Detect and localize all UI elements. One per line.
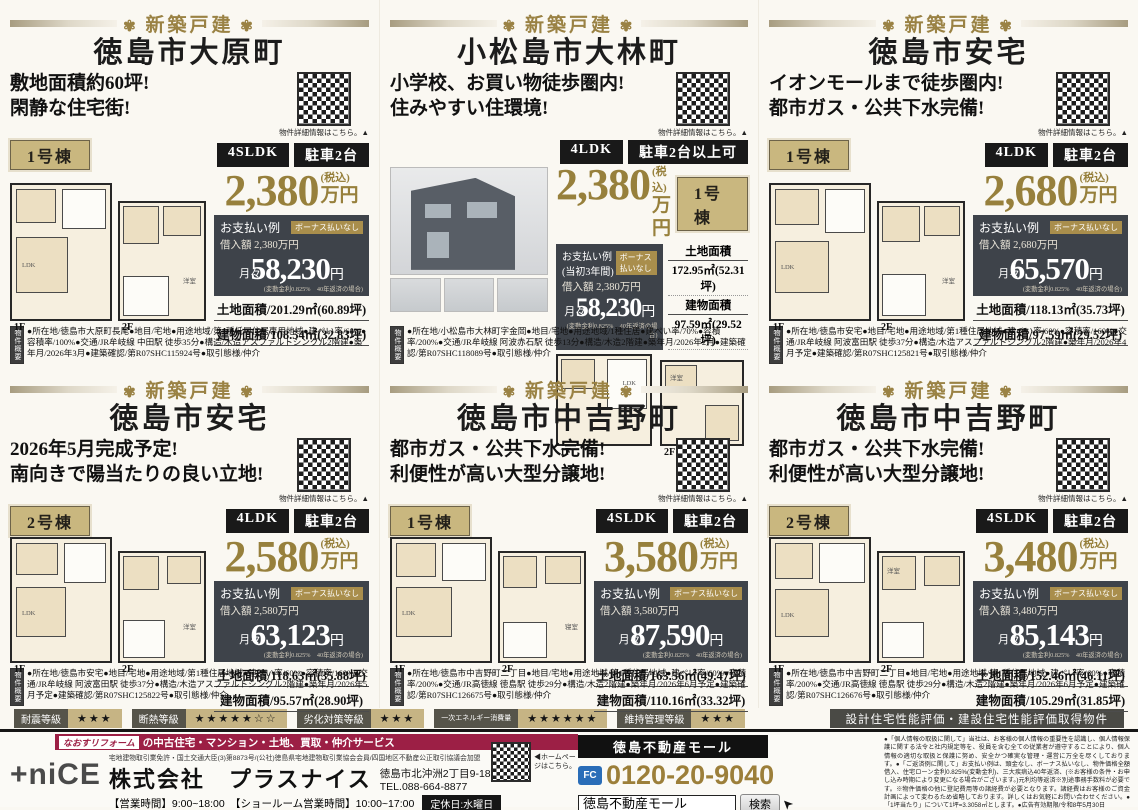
catch-copy: 小学校、お買い物徒歩圏内!住みやすい住環境! (390, 72, 624, 121)
ornament-rule (1021, 20, 1128, 27)
land-area: 172.95㎡(52.31坪) (668, 261, 748, 296)
company-address: 徳島市北沖洲2丁目9-18 TEL.088-664-8877 (380, 768, 491, 794)
qr-label: 物件詳細情報はこちら。▲ (1038, 127, 1128, 138)
qr-code[interactable] (297, 438, 351, 492)
property-overview: 物件概要 ●所在地/徳島市中吉野町二丁目●地目/宅地●用途地域/第1種住居地域●… (769, 665, 1128, 706)
exterior-photo (390, 167, 548, 275)
payment-example: お支払い例ボーナス払いなし 借入額 3,480万円 月々85,143円 (変動金… (973, 581, 1128, 662)
category-label: 新築戸建 (123, 376, 256, 403)
freecall-icon: FC (578, 766, 602, 785)
floor-plan-2f: 洋室 2F (118, 201, 206, 321)
ornament-rule (262, 20, 369, 27)
category-label: 新築戸建 (503, 10, 636, 37)
price: 2,380 (税込)万円 (556, 163, 671, 241)
parking-chip: 駐車2台 (673, 509, 748, 533)
qr-label: 物件詳細情報はこちら。▲ (658, 493, 748, 504)
property-grid: 新築戸建 徳島市大原町 敷地面積約60坪!閑静な住宅街! 物件詳細情報はこちら。… (0, 0, 1138, 708)
ornament-rule (390, 20, 497, 27)
qr-label: 物件詳細情報はこちら。▲ (279, 127, 369, 138)
floor-plan-1f: LDK 1F (769, 537, 871, 663)
property-title: 徳島市中吉野町 (390, 404, 748, 436)
flyer-sheet: 新築戸建 徳島市大原町 敷地面積約60坪!閑静な住宅街! 物件詳細情報はこちら。… (0, 0, 1138, 810)
house-image (411, 178, 515, 270)
homepage-qr-code[interactable] (491, 742, 531, 782)
category-header: 新築戸建 (10, 376, 369, 403)
floor-plan-1f: LDK 1F (390, 537, 492, 663)
qr-label: 物件詳細情報はこちら。▲ (658, 127, 748, 138)
performance-ratings: 耐震等級★★★ 断熱等級★★★★★☆☆ 劣化対策等級★★★ 一次エネルギー消費量… (0, 708, 1138, 732)
catch-copy: 2026年5月完成予定!南向きで陽当たりの良い立地! (10, 438, 263, 487)
ornament-rule (641, 386, 748, 393)
price: 2,380 (税込)万円 (214, 169, 369, 213)
company-name: 株式会社 プラスナイス (109, 762, 372, 794)
footer: なおすリフォーム の中古住宅・マンション・土地、買取・仲介サービス +niCE … (0, 732, 1138, 807)
floor-plan-1f: LDK 1F (10, 537, 112, 663)
price: 2,580 (税込)万円 (214, 535, 369, 579)
qr-label: 物件詳細情報はこちら。▲ (1038, 493, 1128, 504)
property-title: 小松島市大林町 (390, 38, 748, 70)
license-line: 宅地建物取引業免許・国土交通大臣(3)第8873号/(公社)徳島県宅地建物取引業… (109, 752, 501, 762)
category-header: 新築戸建 (769, 376, 1128, 403)
plusnice-logo: +niCE (10, 752, 101, 797)
qr-code[interactable] (676, 72, 730, 126)
parking-chip: 駐車2台 (1053, 509, 1128, 533)
homepage-note: ◀ホームページはこちら。 (534, 753, 576, 771)
ornament-rule (10, 386, 117, 393)
land-area: 土地面積/118.13㎡(35.73坪) (973, 296, 1128, 321)
unit-badge: 2号棟 (769, 506, 849, 536)
parking-chip: 駐車2台 (1053, 143, 1128, 167)
catch-copy: 都市ガス・公共下水完備!利便性が高い大型分譲地! (769, 438, 984, 487)
legal-fine-print: ●「個人情報の取扱に関して」当社は、お客様の個人情報の重要性を認識し、個人情報保… (878, 734, 1132, 807)
category-header: 新築戸建 (390, 10, 748, 37)
unit-badge: 1号棟 (390, 506, 470, 536)
parking-chip: 駐車2台 (294, 143, 369, 167)
property-card-nakayoshino-2: 新築戸建 徳島市中吉野町 都市ガス・公共下水完備!利便性が高い大型分譲地! 物件… (758, 366, 1138, 708)
property-title: 徳島市大原町 (10, 38, 369, 70)
ornament-rule (769, 20, 876, 27)
bonus-badge: ボーナス払いなし (291, 587, 363, 600)
property-overview: 物件概要 ●所在地/徳島市安宅●地目/宅地●用途地域/第1種住居地域●建ぺい率/… (769, 323, 1128, 364)
floor-plans: LDK 1F 洋室 2F (769, 539, 965, 665)
payment-example: お支払い例ボーナス払いなし 借入額 2,680万円 月々65,570円 (変動金… (973, 215, 1128, 296)
ornament-rule (1021, 386, 1128, 393)
bonus-badge: ボーナス払いなし (1050, 221, 1122, 234)
cursor-icon: ➤ (778, 794, 797, 810)
floor-plans: LDK 1F 洋室 2F (10, 539, 206, 665)
bonus-badge: ボーナス払いなし (670, 587, 742, 600)
unit-badge: 1号棟 (769, 140, 849, 170)
bonus-badge: ボーナス払いなし (291, 221, 363, 234)
layout-chip: 4SLDK (976, 509, 1048, 533)
category-label: 新築戸建 (882, 376, 1015, 403)
qr-code[interactable] (1056, 438, 1110, 492)
reform-tagline: の中古住宅・マンション・土地、買取・仲介サービス (143, 735, 395, 750)
layout-chip: 4SLDK (217, 143, 289, 167)
floor-plans: LDK 1F 寝室 2F (390, 539, 586, 665)
closed-day-chip: 定休日:水曜日 (422, 795, 501, 810)
property-card-ataka-2: 新築戸建 徳島市安宅 2026年5月完成予定!南向きで陽当たりの良い立地! 物件… (0, 366, 379, 708)
ornament-rule (390, 386, 497, 393)
property-card-ataka-1: 新築戸建 徳島市安宅 イオンモールまで徒歩圏内!都市ガス・公共下水完備! 物件詳… (758, 0, 1138, 366)
bonus-badge: ボーナス払いなし (1050, 587, 1122, 600)
interior-photos (390, 278, 548, 312)
floor-plan-2f: 洋室 2F (877, 201, 965, 321)
ornament-rule (262, 386, 369, 393)
phone-number: TEL.088-664-8877 (380, 781, 491, 794)
unit-badge: 1号棟 (10, 140, 90, 170)
category-label: 新築戸建 (882, 10, 1015, 37)
payment-example: お支払い例ボーナス払いなし 借入額 2,580万円 月々63,123円 (変動金… (214, 581, 369, 662)
floor-plan-2f: 洋室 2F (118, 551, 206, 663)
layout-chip: 4LDK (985, 143, 1048, 167)
property-overview: 物件概要 ●所在地/徳島市中吉野町二丁目●地目/宅地●用途地域/第1種住居地域●… (390, 665, 748, 706)
qr-code[interactable] (676, 438, 730, 492)
catch-copy: 敷地面積約60坪!閑静な住宅街! (10, 72, 149, 121)
payment-example: お支払い例ボーナス払いなし 借入額 3,580万円 月々87,590円 (変動金… (594, 581, 748, 662)
search-input[interactable]: 徳島不動産モール (578, 795, 736, 810)
price: 3,480 (税込)万円 (973, 535, 1128, 579)
property-card-nakayoshino-1: 新築戸建 徳島市中吉野町 都市ガス・公共下水完備!利便性が高い大型分譲地! 物件… (379, 366, 758, 708)
qr-label: 物件詳細情報はこちら。▲ (279, 493, 369, 504)
business-hours: 【営業時間】9:00~18:00 【ショールーム営業時間】10:00~17:00 (109, 796, 414, 810)
rating-seismic: 耐震等級★★★ (14, 709, 122, 728)
floor-plan-1f: LDK 1F (769, 183, 871, 321)
ornament-rule (641, 20, 748, 27)
floor-plan-2f: 洋室 2F (877, 551, 965, 663)
property-title: 徳島市安宅 (10, 404, 369, 436)
category-header: 新築戸建 (390, 376, 748, 403)
price: 2,680 (税込)万円 (973, 169, 1128, 213)
category-header: 新築戸建 (10, 10, 369, 37)
category-label: 新築戸建 (503, 376, 636, 403)
layout-chip: 4SLDK (596, 509, 668, 533)
property-card-ohara: 新築戸建 徳島市大原町 敷地面積約60坪!閑静な住宅街! 物件詳細情報はこちら。… (0, 0, 379, 366)
bonus-badge: ボーナス払いなし (616, 251, 658, 275)
category-header: 新築戸建 (769, 10, 1128, 37)
qr-code[interactable] (297, 72, 351, 126)
floor-plans: LDK 1F 洋室 2F (10, 173, 206, 323)
catch-copy: イオンモールまで徒歩圏内!都市ガス・公共下水完備! (769, 72, 1003, 121)
category-label: 新築戸建 (123, 10, 256, 37)
unit-badge: 2号棟 (10, 506, 90, 536)
floor-plan-1f: LDK 1F (10, 183, 112, 321)
rating-energy: 一次エネルギー消費量★★★★★★ (434, 709, 607, 728)
ornament-rule (769, 386, 876, 393)
reform-logo: なおすリフォーム (59, 736, 139, 749)
search-button[interactable]: 検索 (740, 794, 780, 810)
mall-title-bar: 徳島不動産モール (578, 735, 768, 758)
layout-chip: 4LDK (226, 509, 289, 533)
qr-code[interactable] (1056, 72, 1110, 126)
land-area: 土地面積/201.29㎡(60.89坪) (214, 296, 369, 321)
property-overview: 物件概要 ●所在地/徳島市大原町長尾●地目/宅地●用途地域/第1種低層住居専用地… (10, 323, 369, 364)
freecall-number: 0120-20-9040 (606, 760, 774, 791)
floor-plans: LDK 1F 洋室 2F (769, 173, 965, 323)
parking-chip: 駐車2台 (294, 509, 369, 533)
unit-badge: 1号棟 (677, 177, 748, 231)
property-title: 徳島市中吉野町 (769, 404, 1128, 436)
ornament-rule (10, 20, 117, 27)
property-card-obayashi: 新築戸建 小松島市大林町 小学校、お買い物徒歩圏内!住みやすい住環境! 物件詳細… (379, 0, 758, 366)
property-title: 徳島市安宅 (769, 38, 1128, 70)
floor-plan-2f: 寝室 2F (498, 551, 586, 663)
catch-copy: 都市ガス・公共下水完備!利便性が高い大型分譲地! (390, 438, 605, 487)
payment-example: お支払い例ボーナス払いなし 借入額 2,380万円 月々58,230円 (変動金… (214, 215, 369, 296)
property-overview: 物件概要 ●所在地/徳島市安宅●地目/宅地●用途地域/第1種住居地域●建ぺい率/… (10, 665, 369, 706)
price: 3,580 (税込)万円 (594, 535, 748, 579)
